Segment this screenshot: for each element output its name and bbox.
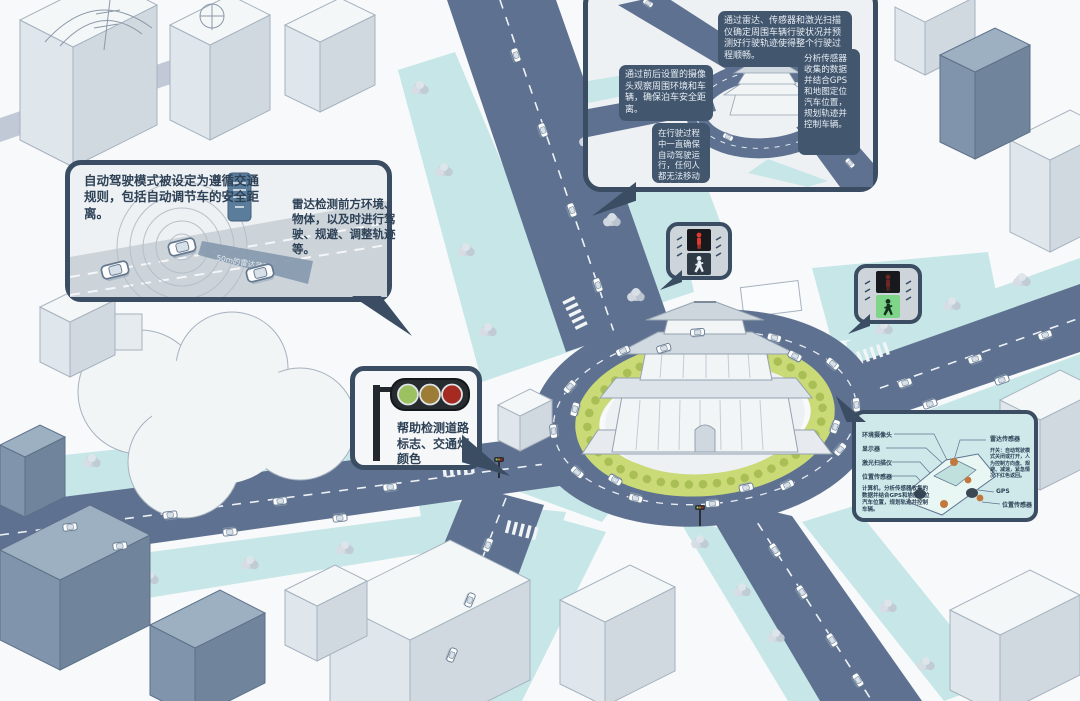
- city-scene: [0, 0, 1080, 701]
- amber-light: [420, 385, 440, 405]
- label-position-sensor-right: 位置传感器: [1002, 502, 1032, 510]
- screenshot-root: 50m的雷达范围 自动驾驶模式被设定为遵循交通规则，包括自动调节车的安全距离。 …: [0, 0, 1080, 701]
- label-position-sensor-left: 位置传感器: [862, 474, 892, 482]
- label-radar-sensor: 雷达传感器: [990, 436, 1020, 444]
- roof-sensor-dot: [950, 458, 958, 466]
- pedestrian-signal-green: [854, 264, 922, 324]
- label-display: 显示器: [862, 446, 880, 454]
- mid-sensor-dot: [965, 477, 972, 484]
- bubble-gps: 分析传感器收集的数据并结合GPS和地图定位汽车位置，规划轨迹并控制车辆。: [798, 49, 860, 155]
- callout-car-sensors: 环境摄像头 显示器 激光扫描仪 位置传感器 计算机，分析传感器收集的数据并结合G…: [852, 410, 1038, 522]
- label-gps: GPS: [996, 488, 1010, 496]
- label-computer: 计算机，分析传感器收集的数据并结合GPS和地图定位汽车位置，规划轨迹并控制车辆。: [862, 486, 930, 514]
- bubble-autopilot: 在行驶过程中一直确保自动驾驶运行，任何人都无法移动方向盘、刹车等。: [652, 123, 710, 183]
- label-laser-scanner: 激光扫描仪: [862, 460, 892, 468]
- callout-autonomous-driving: 50m的雷达范围 自动驾驶模式被设定为遵循交通规则，包括自动调节车的安全距离。 …: [65, 160, 392, 302]
- front-sensor-dot: [940, 500, 948, 508]
- driving-rules-text: 自动驾驶模式被设定为遵循交通规则，包括自动调节车的安全距离。: [84, 173, 266, 222]
- red-light: [442, 385, 462, 405]
- green-light: [398, 385, 418, 405]
- label-switch: 开关：自动驾驶模式关闭或打开，人为控制方向盘、规避、减速，紧急情况下红色返回。: [990, 448, 1032, 479]
- bubble-camera: 通过前后设置的摄像头观察周围环境和车辆，确保泊车安全距离。: [619, 65, 713, 121]
- label-env-camera: 环境摄像头: [862, 432, 892, 440]
- radar-detect-text: 雷达检测前方环境、物体，以及时进行驾驶、规避、调整轨迹等。: [292, 197, 396, 257]
- rear-sensor-dot: [977, 495, 984, 502]
- callout-roundabout-system: 通过雷达、传感器和激光扫描仪确定周围车辆行驶状况并预测好行驶轨迹使得整个行驶过程…: [583, 0, 878, 192]
- pedestrian-signal-red: [666, 222, 732, 280]
